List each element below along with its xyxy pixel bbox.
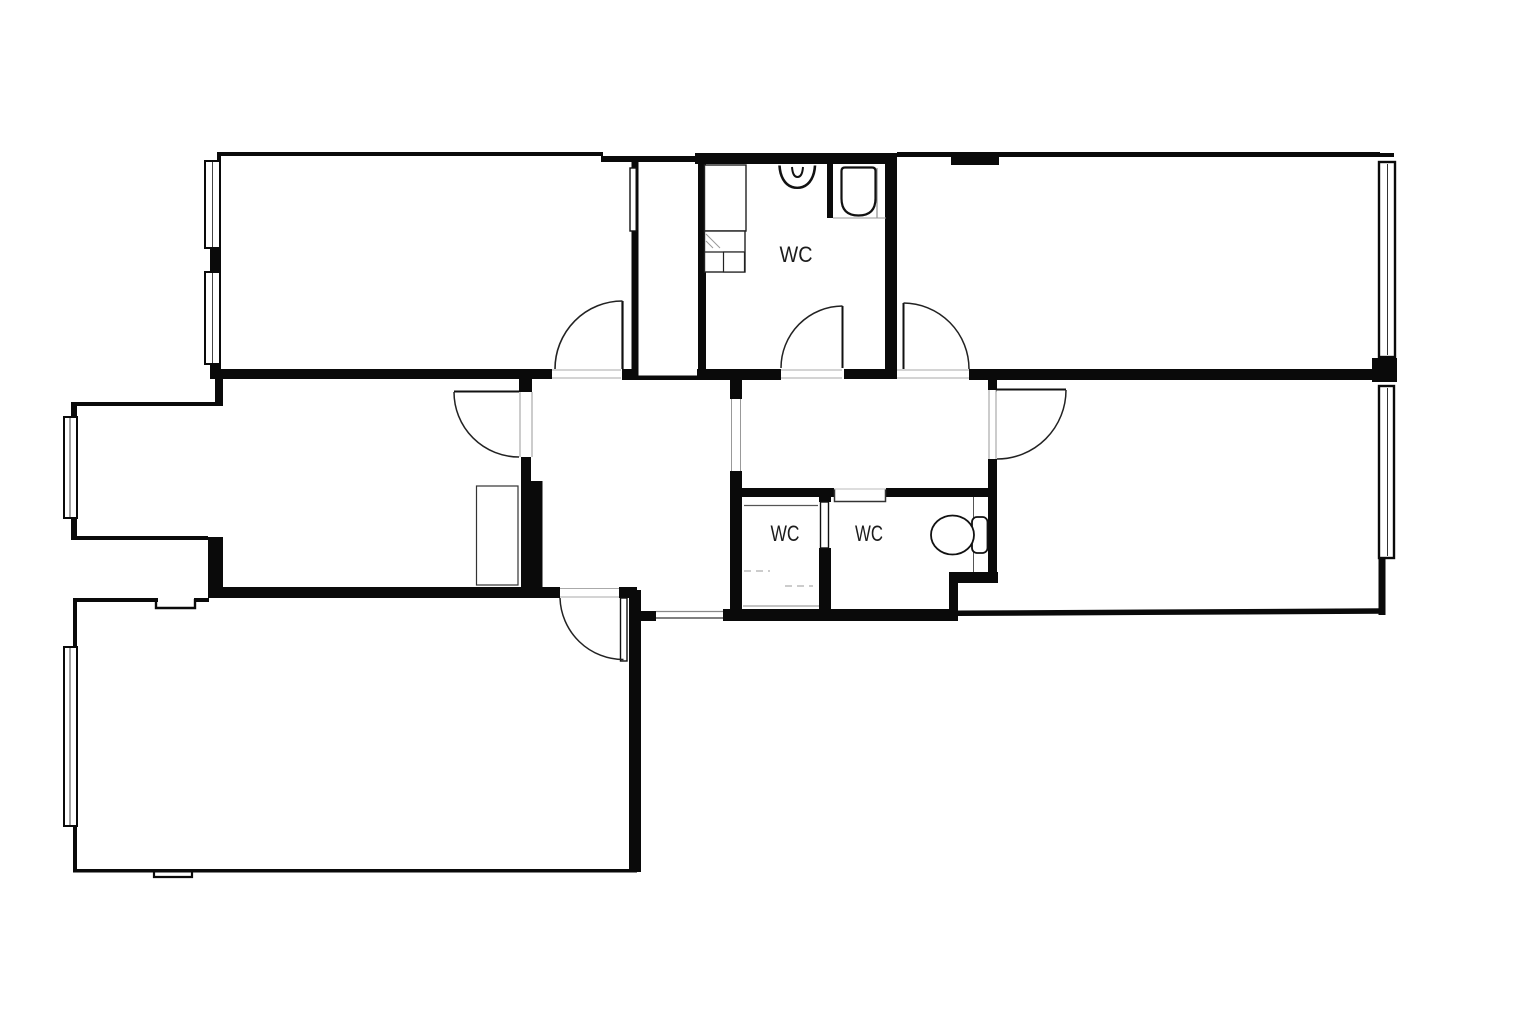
svg-text:WC: WC (771, 521, 800, 546)
svg-text:WC: WC (780, 242, 813, 267)
svg-text:WC: WC (855, 521, 883, 546)
